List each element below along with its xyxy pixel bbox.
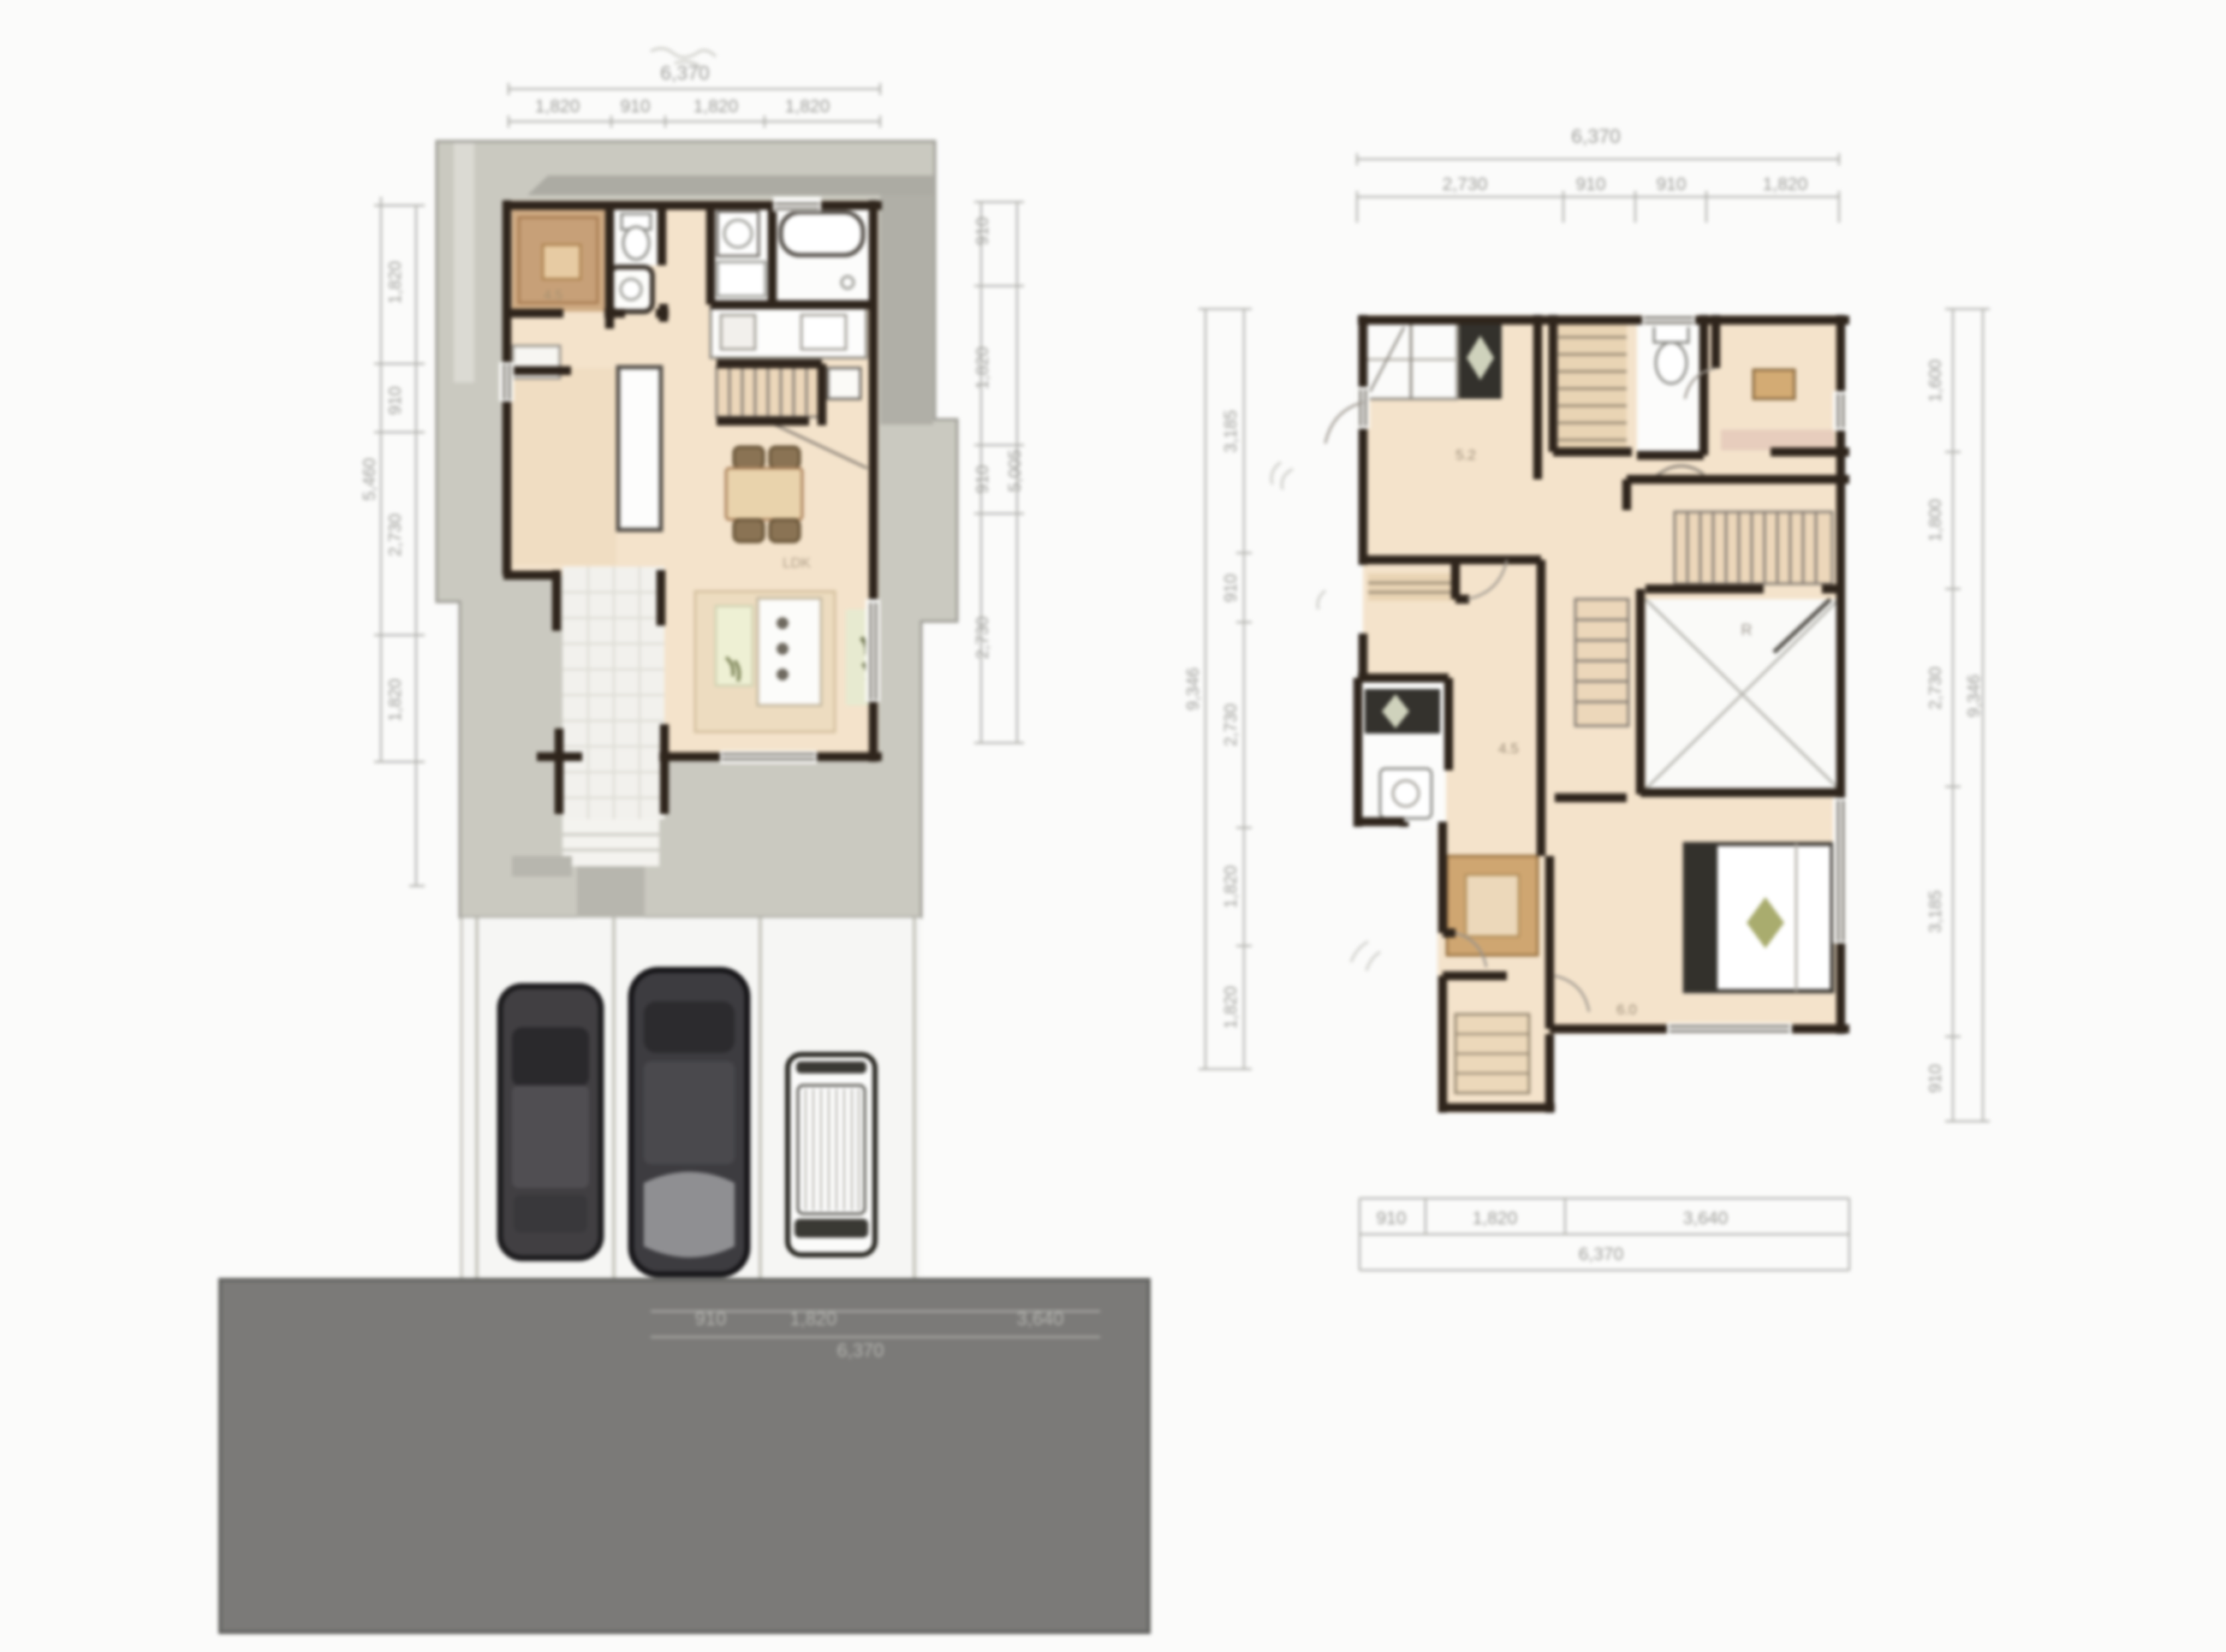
svg-text:910: 910 — [695, 1308, 727, 1329]
svg-text:3,640: 3,640 — [1683, 1209, 1729, 1228]
svg-text:910: 910 — [1926, 1064, 1945, 1092]
svg-text:3,185: 3,185 — [1926, 890, 1945, 933]
svg-text:9,346: 9,346 — [1965, 674, 1984, 717]
svg-text:910: 910 — [386, 386, 405, 414]
svg-text:1,820: 1,820 — [693, 97, 739, 116]
svg-text:2,730: 2,730 — [1222, 704, 1241, 746]
svg-text:1,820: 1,820 — [386, 261, 405, 304]
svg-text:6.0: 6.0 — [1616, 1001, 1637, 1018]
svg-text:6,370: 6,370 — [660, 62, 710, 84]
svg-text:4.5: 4.5 — [1498, 740, 1519, 757]
svg-text:1,820: 1,820 — [785, 97, 830, 116]
svg-text:4.5: 4.5 — [544, 288, 562, 303]
svg-text:6,370: 6,370 — [836, 1340, 884, 1361]
svg-text:1,820: 1,820 — [386, 679, 405, 722]
svg-text:1,820: 1,820 — [1473, 1209, 1518, 1228]
svg-text:1,820: 1,820 — [1222, 986, 1241, 1029]
svg-text:5,005: 5,005 — [1006, 449, 1025, 492]
svg-text:1,820: 1,820 — [1222, 865, 1241, 908]
svg-text:6,370: 6,370 — [1571, 125, 1621, 147]
svg-text:910: 910 — [973, 465, 992, 493]
svg-text:1,820: 1,820 — [973, 347, 992, 389]
svg-text:910: 910 — [1376, 1209, 1406, 1228]
svg-text:1,600: 1,600 — [1926, 360, 1945, 402]
svg-text:6,370: 6,370 — [1579, 1245, 1624, 1264]
svg-text:1,820: 1,820 — [535, 97, 580, 116]
svg-text:2,730: 2,730 — [973, 616, 992, 659]
svg-text:910: 910 — [620, 97, 650, 116]
svg-text:2,730: 2,730 — [1926, 667, 1945, 710]
svg-text:3,640: 3,640 — [1016, 1308, 1063, 1329]
svg-text:2,730: 2,730 — [1443, 175, 1488, 194]
svg-text:3,185: 3,185 — [1222, 410, 1241, 453]
svg-text:1,820: 1,820 — [789, 1308, 836, 1329]
svg-text:1,820: 1,820 — [1763, 175, 1808, 194]
svg-text:1,800: 1,800 — [1926, 499, 1945, 542]
svg-text:9,346: 9,346 — [1184, 668, 1203, 710]
svg-text:910: 910 — [1575, 175, 1605, 194]
svg-text:2,730: 2,730 — [386, 514, 405, 556]
svg-text:LDK: LDK — [783, 555, 812, 571]
svg-text:5,460: 5,460 — [360, 458, 379, 501]
svg-text:R: R — [1741, 621, 1753, 639]
svg-text:910: 910 — [973, 217, 992, 245]
svg-text:910: 910 — [1222, 573, 1241, 602]
svg-text:5.2: 5.2 — [1455, 447, 1476, 463]
svg-text:910: 910 — [1656, 175, 1686, 194]
